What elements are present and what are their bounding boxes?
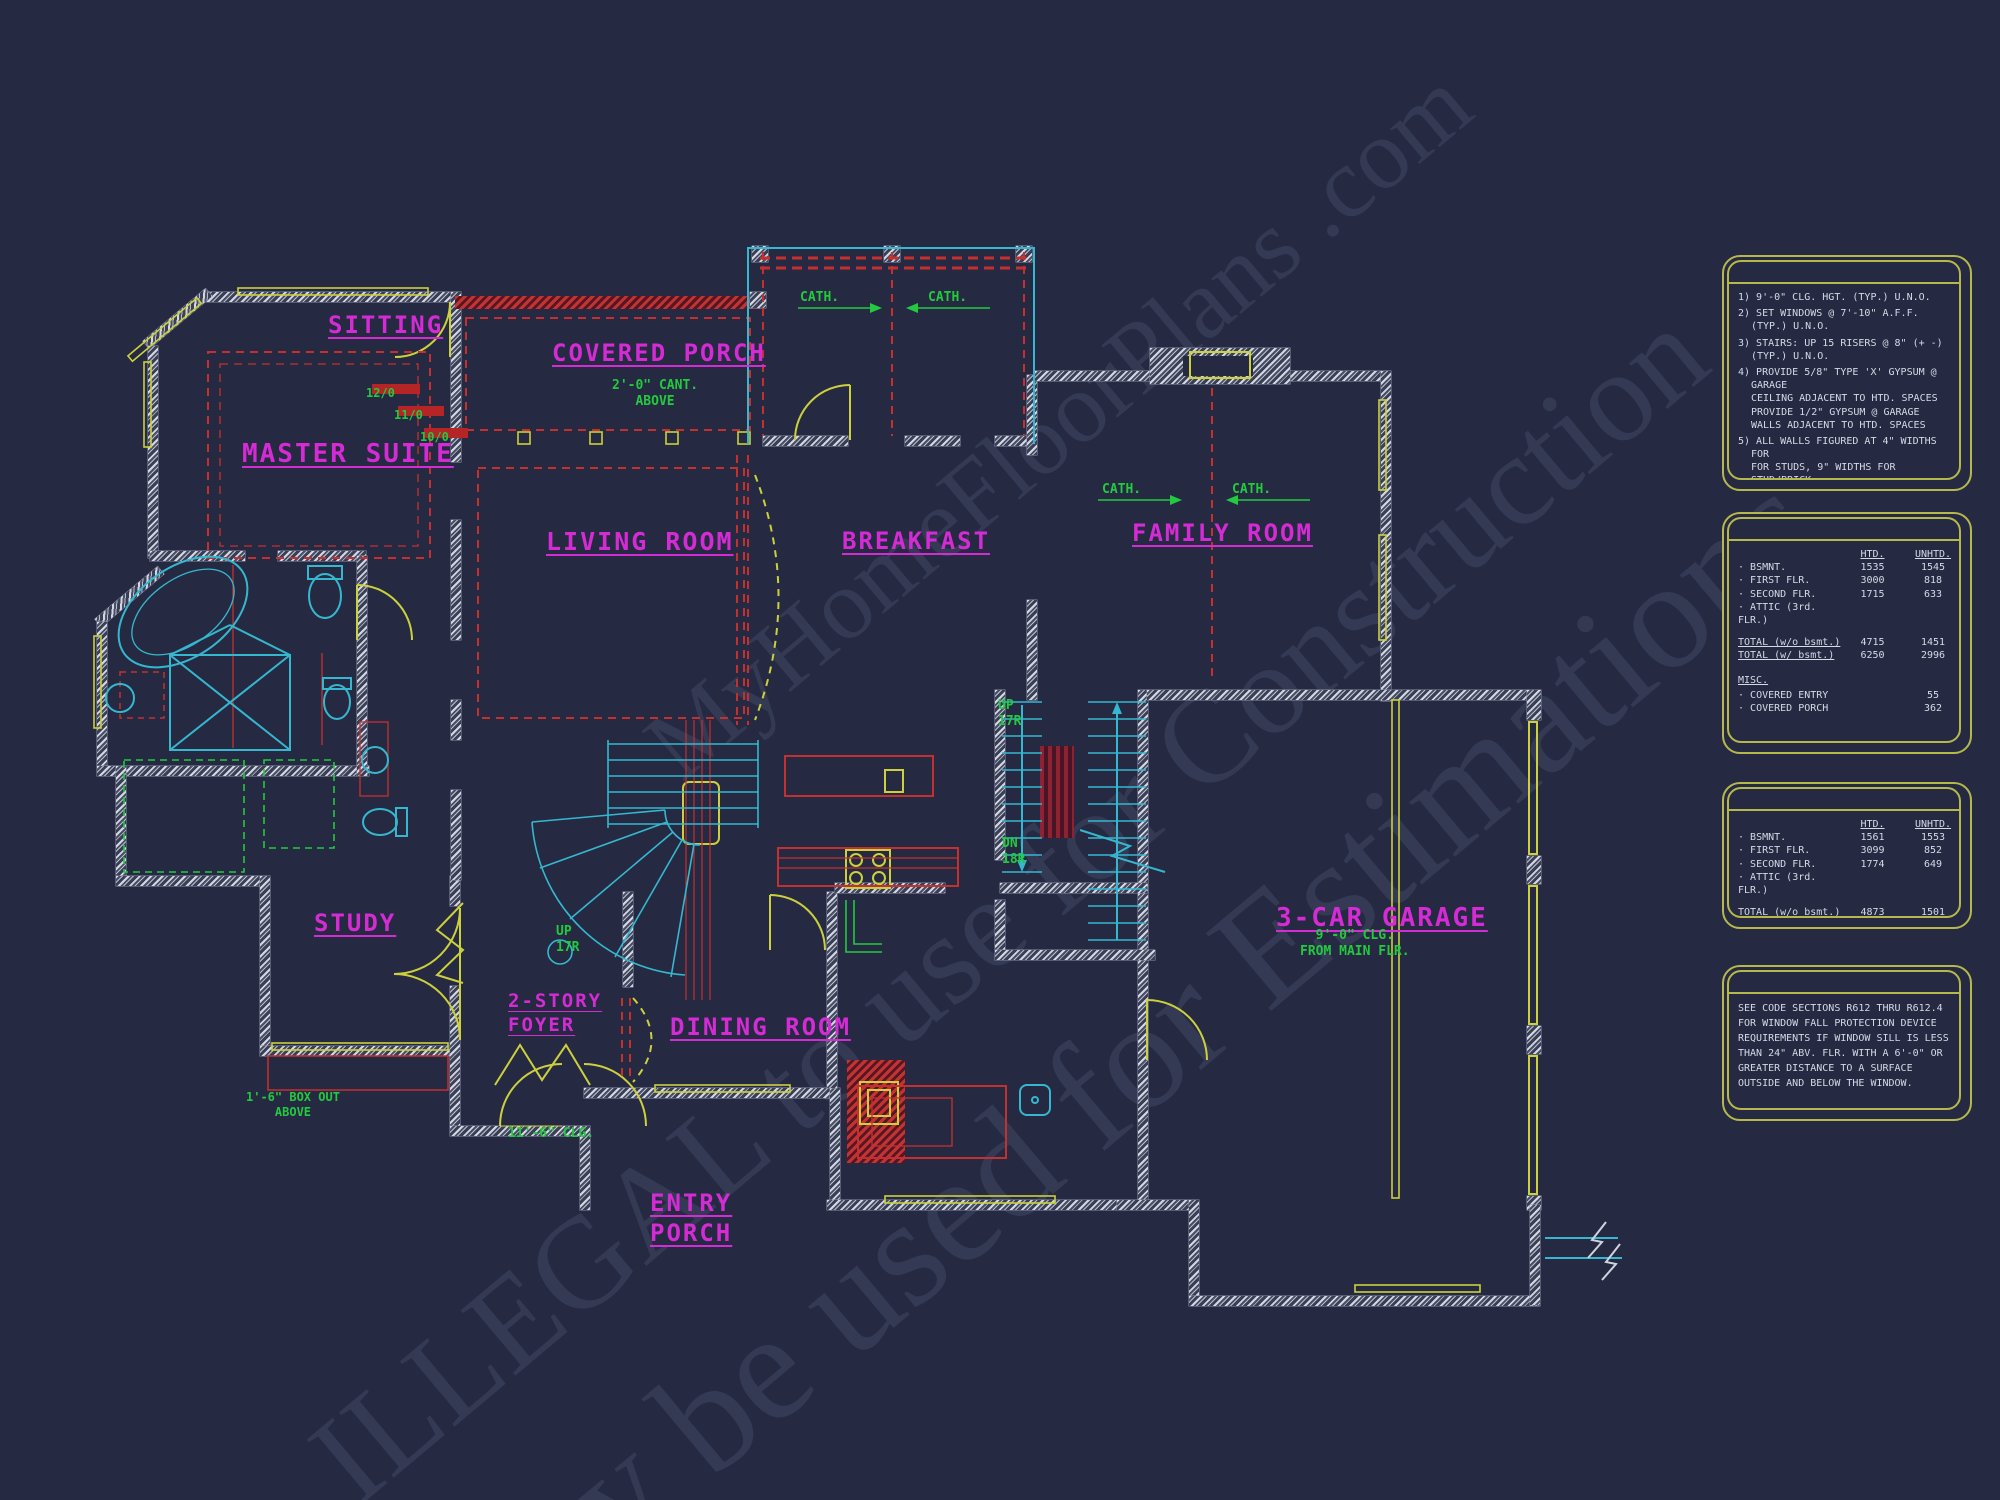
table-row: BSMNT.15611553 (1738, 831, 1968, 844)
annotation-cantilever: 2'-0" CANT. ABOVE (612, 378, 698, 411)
wall-segment (1189, 1200, 1199, 1304)
panel-header (1729, 789, 1959, 811)
panel-header (1729, 972, 1959, 994)
general-note: 1) 9'-0" CLG. HGT. (TYP.) U.N.O. (1738, 291, 1950, 304)
room-label-foyer: 2-STORY FOYER (508, 990, 602, 1038)
general-note: 3) STAIRS: UP 15 RISERS @ 8" (+ -) (TYP.… (1738, 337, 1950, 363)
wall-segment (1381, 371, 1391, 701)
garage-pier (1527, 856, 1541, 884)
floorplan-canvas: MyHomeFloorPlans .com ILLEGAL to use for… (0, 0, 2000, 1500)
table-row: ATTIC (3rd. FLR.) (1738, 871, 1968, 897)
wall-segment (116, 766, 126, 884)
wall-segment (1000, 883, 1147, 893)
panel-header (1729, 519, 1959, 541)
wall-segment (623, 892, 633, 987)
room-label-sitting: SITTING (328, 310, 443, 340)
garage-pier (1527, 690, 1541, 720)
misc-heading: MISC. (1738, 674, 1968, 687)
break-marks (1588, 1222, 1620, 1280)
porch-brick-wall (455, 296, 763, 309)
room-label-entry-porch: ENTRY PORCH (650, 1188, 732, 1248)
wall-segment (827, 892, 837, 1088)
wall-segment (97, 766, 369, 776)
annotation-tray-step: 10/0 (420, 430, 449, 445)
wall-segment (97, 622, 107, 772)
table-row: FIRST FLR.3099852 (1738, 844, 1968, 857)
table-misc-row: COVERED PORCH362 (1738, 702, 1968, 715)
room-label-study: STUDY (314, 908, 396, 938)
annotation-box-out: 1'-6" BOX OUT ABOVE (246, 1090, 340, 1120)
table-total-row: TOTAL (w/o bsmt.)47151451 (1738, 636, 1968, 649)
wall-segment (763, 436, 848, 446)
room-label-covered-porch: COVERED PORCH (552, 338, 766, 368)
wall-segment (148, 346, 158, 558)
wall-segment (205, 292, 460, 302)
annotation-foyer-ceiling: 11'-6" CLG. (508, 1126, 594, 1142)
wall-segment (1189, 1296, 1540, 1306)
table-total-row: TOTAL (w/ bsmt.)62502996 (1738, 649, 1968, 662)
annotation-tray-step: 12/0 (366, 386, 395, 401)
wall-segment (995, 950, 1155, 960)
room-label-breakfast: BREAKFAST (842, 526, 990, 556)
wall-segment (835, 883, 945, 893)
garage-pier (1527, 1026, 1541, 1054)
annotation-cathedral: CATH. (1102, 482, 1141, 498)
wall-segment (150, 551, 245, 561)
code-note-panel: SEE CODE SECTIONS R612 THRU R612.4 FOR W… (1722, 965, 1972, 1121)
wall-segment (260, 1046, 460, 1056)
room-label-family-room: FAMILY ROOM (1132, 518, 1313, 548)
stair-center-wall (1040, 746, 1074, 838)
wall-segment (143, 288, 212, 348)
porch-post (1016, 246, 1032, 262)
annotation-cathedral: CATH. (800, 290, 839, 306)
table-row: SECOND FLR.1774649 (1738, 858, 1968, 871)
wall-segment (260, 876, 270, 1056)
wall-segment (1027, 600, 1037, 700)
table-row: ATTIC (3rd. FLR.) (1738, 601, 1968, 627)
fireplace-firebox (1183, 356, 1253, 376)
area-table-panel-1: HTD.UNHTD. BSMNT.15351545 FIRST FLR.3000… (1722, 512, 1972, 754)
wall-segment (830, 1088, 840, 1210)
floorplan-drawing: SITTING MASTER SUITE COVERED PORCH LIVIN… (0, 0, 2000, 1500)
annotation-cathedral: CATH. (928, 290, 967, 306)
table-header-row: HTD.UNHTD. (1738, 818, 1968, 831)
wall-segment (450, 986, 460, 1136)
annotation-stairs-up: UP 17R (556, 924, 579, 957)
wall-segment (450, 876, 460, 906)
annotation-stairs-up: UP 17R (998, 698, 1021, 731)
porch-post (750, 292, 766, 308)
table-row: SECOND FLR.1715633 (1738, 588, 1968, 601)
general-note: 5) ALL WALLS FIGURED AT 4" WIDTHS FOR FO… (1738, 435, 1950, 478)
area-table-panel-2: HTD.UNHTD. BSMNT.15611553 FIRST FLR.3099… (1722, 782, 1972, 929)
wall-segment (278, 551, 366, 561)
general-note: 2) SET WINDOWS @ 7'-10" A.F.F. (TYP.) U.… (1738, 307, 1950, 333)
annotation-stairs-down: DN 18R (1002, 836, 1025, 869)
annotation-cathedral: CATH. (1232, 482, 1271, 498)
table-total-row: TOTAL (w/o bsmt.)48731501 (1738, 906, 1968, 916)
porch-post (752, 246, 768, 262)
general-note: 4) PROVIDE 5/8" TYPE 'X' GYPSUM @ GARAGE… (1738, 366, 1950, 432)
wall-segment (905, 436, 960, 446)
wall-segment (584, 1088, 840, 1098)
panel-header (1729, 262, 1959, 284)
table-row: BSMNT.15351545 (1738, 561, 1968, 574)
table-row: FIRST FLR.3000818 (1738, 574, 1968, 587)
wall-segment (1027, 375, 1037, 455)
green-layer (124, 303, 1310, 952)
table-misc-row: COVERED ENTRY55 (1738, 689, 1968, 702)
doors-layer (357, 302, 1250, 1126)
wall-segment (451, 790, 461, 880)
wall-segment (95, 566, 164, 626)
annotation-tray-step: 11/0 (394, 408, 423, 423)
porch-post (884, 246, 900, 262)
wall-segment (451, 700, 461, 740)
table-header-row: HTD.UNHTD. (1738, 548, 1968, 561)
wall-segment (116, 876, 270, 886)
room-label-dining-room: DINING ROOM (670, 1012, 851, 1042)
wall-segment (1530, 1205, 1540, 1305)
annotation-garage-ceiling: 9'-0" CLG. FROM MAIN FLR. (1300, 928, 1410, 961)
room-label-living-room: LIVING ROOM (546, 526, 734, 557)
wall-segment (451, 520, 461, 640)
general-notes-panel: 1) 9'-0" CLG. HGT. (TYP.) U.N.O. 2) SET … (1722, 255, 1972, 491)
wall-segment (827, 1200, 1117, 1210)
wall-segment (357, 556, 367, 776)
wall-segment (1147, 690, 1539, 700)
wall-segment (451, 292, 461, 462)
chimney-masonry (847, 1060, 905, 1163)
code-note-text: SEE CODE SECTIONS R612 THRU R612.4 FOR W… (1738, 1001, 1950, 1091)
wall-segment (1117, 1200, 1197, 1210)
